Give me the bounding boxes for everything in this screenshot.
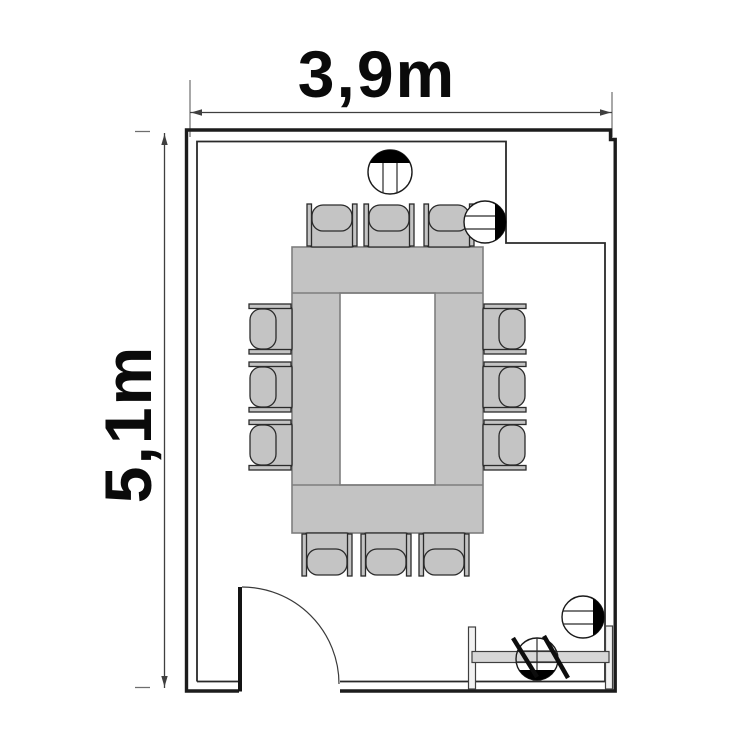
floor-plan-canvas: 3,9m 5,1m xyxy=(0,0,750,750)
dimension-arrow-left xyxy=(191,109,202,115)
fixture-marker-upper-right xyxy=(464,201,506,243)
chair xyxy=(302,533,352,576)
chair xyxy=(364,204,414,247)
chair xyxy=(483,362,526,412)
chair xyxy=(361,533,411,576)
floor-plan: 3,9m 5,1m xyxy=(0,0,750,750)
dimension-height: 5,1m xyxy=(91,132,168,689)
fixture-marker-lower-right xyxy=(562,596,604,638)
sideboard-bar xyxy=(472,652,609,663)
width-dimension-label: 3,9m xyxy=(298,37,456,111)
height-dimension-label: 5,1m xyxy=(91,345,165,503)
dimension-arrow-down xyxy=(161,676,167,687)
dimension-width: 3,9m xyxy=(190,37,612,137)
chair xyxy=(419,533,469,576)
door xyxy=(240,587,339,692)
chair xyxy=(483,304,526,354)
dimension-arrow-up xyxy=(161,134,167,145)
chair xyxy=(249,304,292,354)
conference-table xyxy=(292,247,483,533)
chair xyxy=(249,420,292,470)
chair xyxy=(307,204,357,247)
table-top-surface xyxy=(292,247,483,533)
chair xyxy=(483,420,526,470)
table-center-opening xyxy=(340,293,435,485)
chair xyxy=(249,362,292,412)
fixture-marker-top-center xyxy=(368,150,412,194)
door-swing-arc xyxy=(242,587,339,684)
dimension-arrow-right xyxy=(600,109,611,115)
